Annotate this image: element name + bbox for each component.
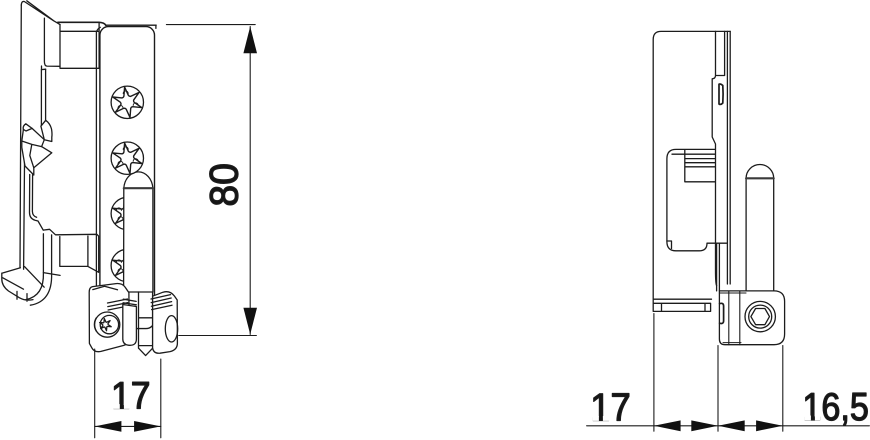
svg-text:16,5: 16,5	[802, 386, 869, 429]
svg-text:17: 17	[590, 386, 631, 429]
svg-text:80: 80	[202, 163, 246, 207]
svg-text:17: 17	[111, 375, 151, 417]
